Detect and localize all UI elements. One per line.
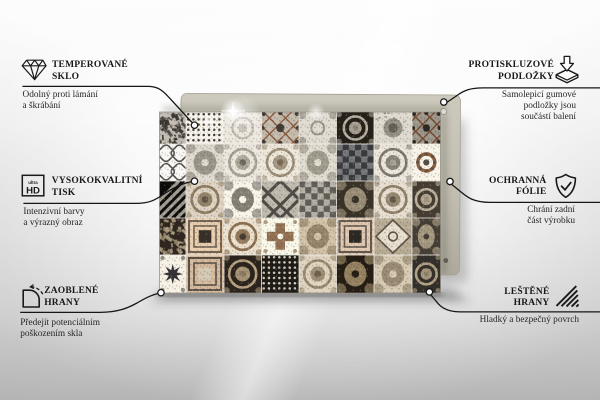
svg-text:ultra: ultra <box>28 180 38 185</box>
svg-text:HD: HD <box>26 185 40 196</box>
